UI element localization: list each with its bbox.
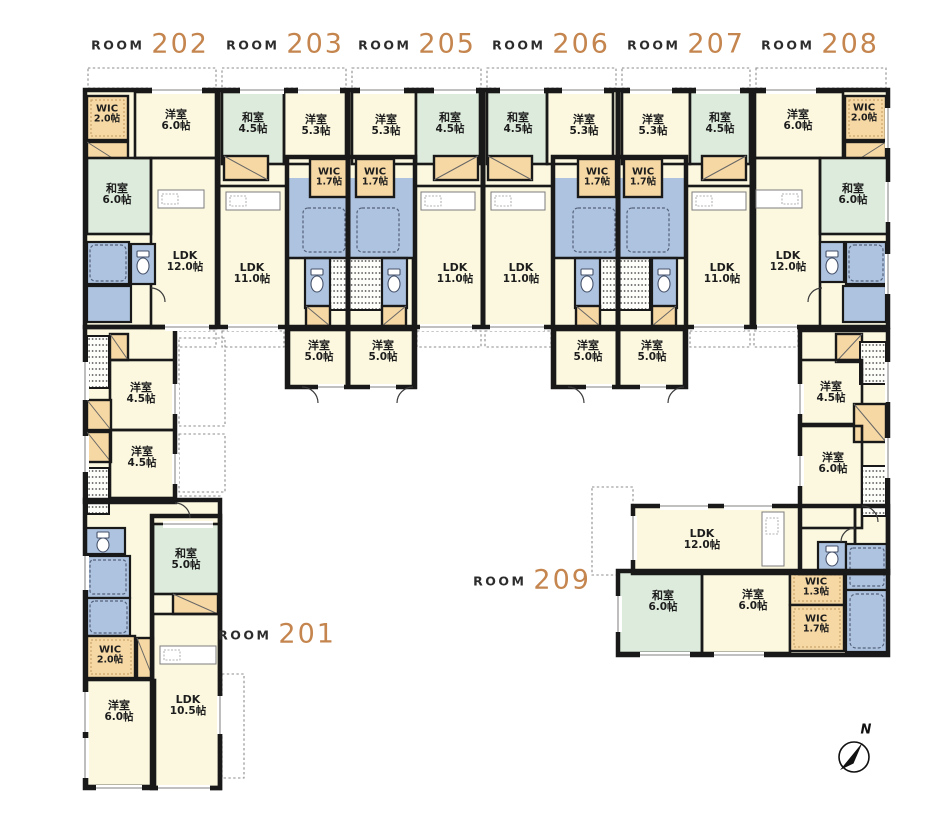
staircase xyxy=(860,342,886,384)
room-label: 洋室5.0帖 xyxy=(368,340,397,364)
room-number-201: ROOM201 xyxy=(218,619,336,650)
room-label: WIC1.7帖 xyxy=(362,166,388,187)
room-label: WIC1.7帖 xyxy=(803,613,829,634)
staircase xyxy=(862,466,886,516)
room-label: WIC2.0帖 xyxy=(97,644,123,665)
vanity-208 xyxy=(843,286,886,322)
room-label: 洋室5.3帖 xyxy=(569,114,598,138)
room-label: 洋室4.5帖 xyxy=(126,382,155,406)
room-label: 和室6.0帖 xyxy=(838,183,867,207)
room-label: LDK12.0帖 xyxy=(167,250,203,274)
room-number-209: ROOM209 xyxy=(473,565,591,596)
room-label: 洋室6.0帖 xyxy=(738,589,767,613)
room-number-205: ROOM205 xyxy=(358,29,476,60)
room-number-202: ROOM202 xyxy=(91,29,209,60)
staircase xyxy=(87,468,109,514)
vanity-202 xyxy=(87,286,131,322)
bath-201 xyxy=(87,598,130,636)
room-label: 洋室6.0帖 xyxy=(783,109,812,133)
room-label: 和室6.0帖 xyxy=(648,590,677,614)
room-label: 和室4.5帖 xyxy=(238,112,267,136)
room-label: 洋室6.0帖 xyxy=(104,700,133,724)
room-label: 洋室5.3帖 xyxy=(301,114,330,138)
room-label: 和室4.5帖 xyxy=(705,112,734,136)
room-label: 洋室4.5帖 xyxy=(816,381,845,405)
room-label: WIC2.0帖 xyxy=(94,103,120,124)
room-label: 洋室5.0帖 xyxy=(304,340,333,364)
vanity-209 xyxy=(846,544,888,590)
room-label: 和室6.0帖 xyxy=(102,183,131,207)
bath-202 xyxy=(87,242,129,284)
room-label: LDK11.0帖 xyxy=(503,262,539,286)
room-number-208: ROOM208 xyxy=(761,29,879,60)
room-number-203: ROOM203 xyxy=(226,29,344,60)
room-label: WIC1.7帖 xyxy=(584,166,610,187)
room-label: 洋室6.0帖 xyxy=(161,109,190,133)
bath-208 xyxy=(846,242,886,284)
room-label: 和室4.5帖 xyxy=(503,112,532,136)
compass-north-label: N xyxy=(861,723,872,738)
bath-209 xyxy=(846,590,888,652)
room-label: WIC1.7帖 xyxy=(630,166,656,187)
room-label: 洋室5.0帖 xyxy=(573,340,602,364)
room-label: 和室4.5帖 xyxy=(435,112,464,136)
room-label: 洋室5.3帖 xyxy=(638,114,667,138)
room-label: 洋室6.0帖 xyxy=(818,452,847,476)
room-label: LDK10.5帖 xyxy=(170,694,206,718)
floor-plan: ROOM202 ROOM203 ROOM205 ROOM206 ROOM207 … xyxy=(0,0,950,822)
room-label: LDK12.0帖 xyxy=(684,528,720,552)
staircase xyxy=(330,258,382,310)
room-label: 洋室5.0帖 xyxy=(637,340,666,364)
room-label: 洋室5.3帖 xyxy=(371,114,400,138)
room-label: WIC1.7帖 xyxy=(316,166,342,187)
staircase xyxy=(600,258,650,310)
room-label: LDK11.0帖 xyxy=(234,262,270,286)
room-label: WIC1.3帖 xyxy=(803,576,829,597)
room-label: WIC2.0帖 xyxy=(851,102,877,123)
room-number-206: ROOM206 xyxy=(492,29,610,60)
room-number-207: ROOM207 xyxy=(627,29,745,60)
staircase xyxy=(87,336,109,388)
compass-icon xyxy=(839,742,869,772)
room-label: LDK12.0帖 xyxy=(770,250,806,274)
vanity-201 xyxy=(87,556,130,598)
room-label: LDK11.0帖 xyxy=(704,262,740,286)
room-label: 洋室4.5帖 xyxy=(127,446,156,470)
room-label: LDK11.0帖 xyxy=(437,262,473,286)
room-label: 和室5.0帖 xyxy=(171,548,200,572)
